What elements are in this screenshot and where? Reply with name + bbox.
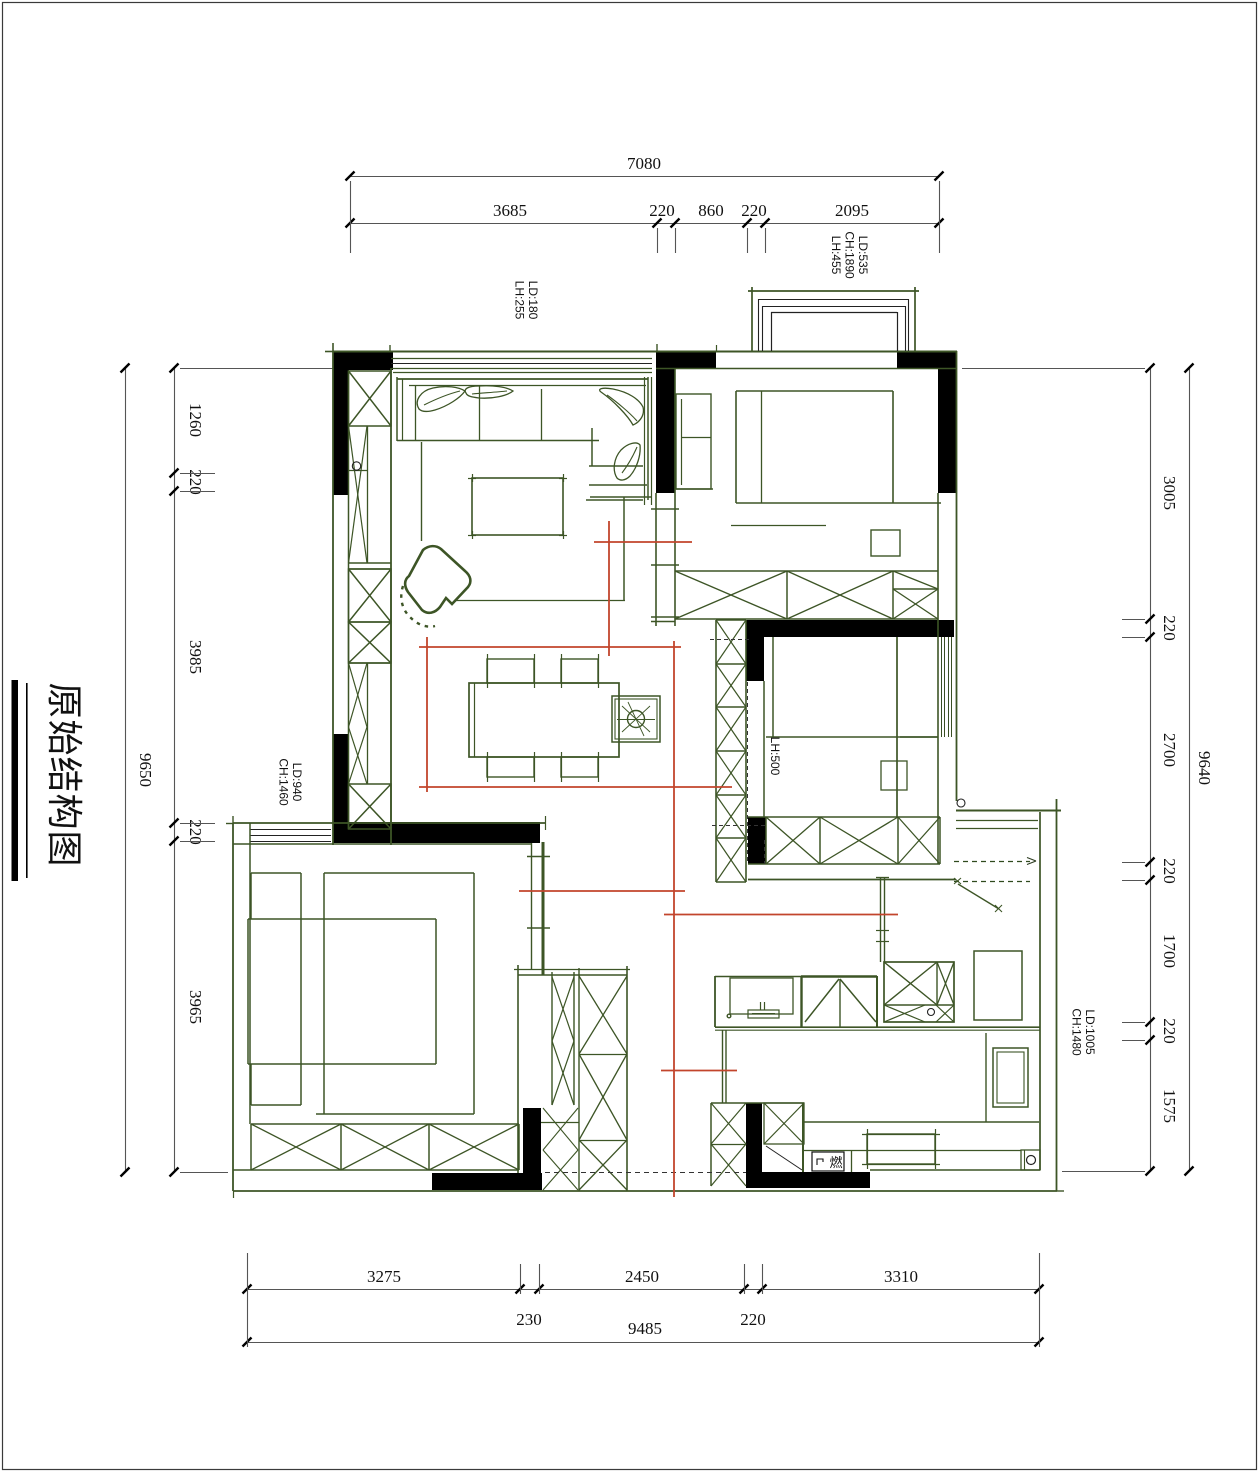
svg-text:220: 220 bbox=[649, 201, 675, 220]
svg-text:230: 230 bbox=[516, 1310, 542, 1329]
svg-text:LH:500: LH:500 bbox=[768, 737, 782, 776]
svg-text:860: 860 bbox=[698, 201, 724, 220]
svg-text:220: 220 bbox=[1160, 1018, 1179, 1044]
svg-text:9485: 9485 bbox=[628, 1319, 662, 1338]
svg-text:3985: 3985 bbox=[186, 640, 205, 674]
svg-text:2450: 2450 bbox=[625, 1267, 659, 1286]
svg-text:LD:180: LD:180 bbox=[526, 281, 540, 320]
svg-text:燃: 燃 bbox=[829, 1155, 842, 1170]
svg-text:220: 220 bbox=[740, 1310, 766, 1329]
svg-text:220: 220 bbox=[741, 201, 767, 220]
svg-text:LD:535: LD:535 bbox=[856, 236, 870, 275]
svg-text:3965: 3965 bbox=[186, 990, 205, 1024]
svg-text:7080: 7080 bbox=[627, 154, 661, 173]
svg-text:9640: 9640 bbox=[1195, 751, 1214, 785]
svg-text:220: 220 bbox=[1160, 858, 1179, 884]
svg-text:220: 220 bbox=[1160, 615, 1179, 641]
svg-text:2095: 2095 bbox=[835, 201, 869, 220]
svg-text:LD:1005: LD:1005 bbox=[1083, 1009, 1097, 1055]
svg-text:3005: 3005 bbox=[1160, 476, 1179, 510]
svg-text:CH:1460: CH:1460 bbox=[277, 758, 291, 806]
svg-text:LH:455: LH:455 bbox=[829, 236, 843, 275]
svg-text:1260: 1260 bbox=[186, 403, 205, 437]
svg-text:LH:255: LH:255 bbox=[513, 281, 527, 320]
svg-text:2700: 2700 bbox=[1160, 733, 1179, 767]
svg-text:9650: 9650 bbox=[136, 753, 155, 787]
svg-text:3275: 3275 bbox=[367, 1267, 401, 1286]
svg-text:CH:1480: CH:1480 bbox=[1070, 1008, 1084, 1056]
svg-text:1575: 1575 bbox=[1160, 1089, 1179, 1123]
svg-text:原始结构图: 原始结构图 bbox=[44, 682, 85, 867]
svg-text:3685: 3685 bbox=[493, 201, 527, 220]
svg-text:1700: 1700 bbox=[1160, 934, 1179, 968]
svg-text:3310: 3310 bbox=[884, 1267, 918, 1286]
svg-text:LD:940: LD:940 bbox=[290, 763, 304, 802]
svg-text:CH:1890: CH:1890 bbox=[843, 231, 857, 279]
